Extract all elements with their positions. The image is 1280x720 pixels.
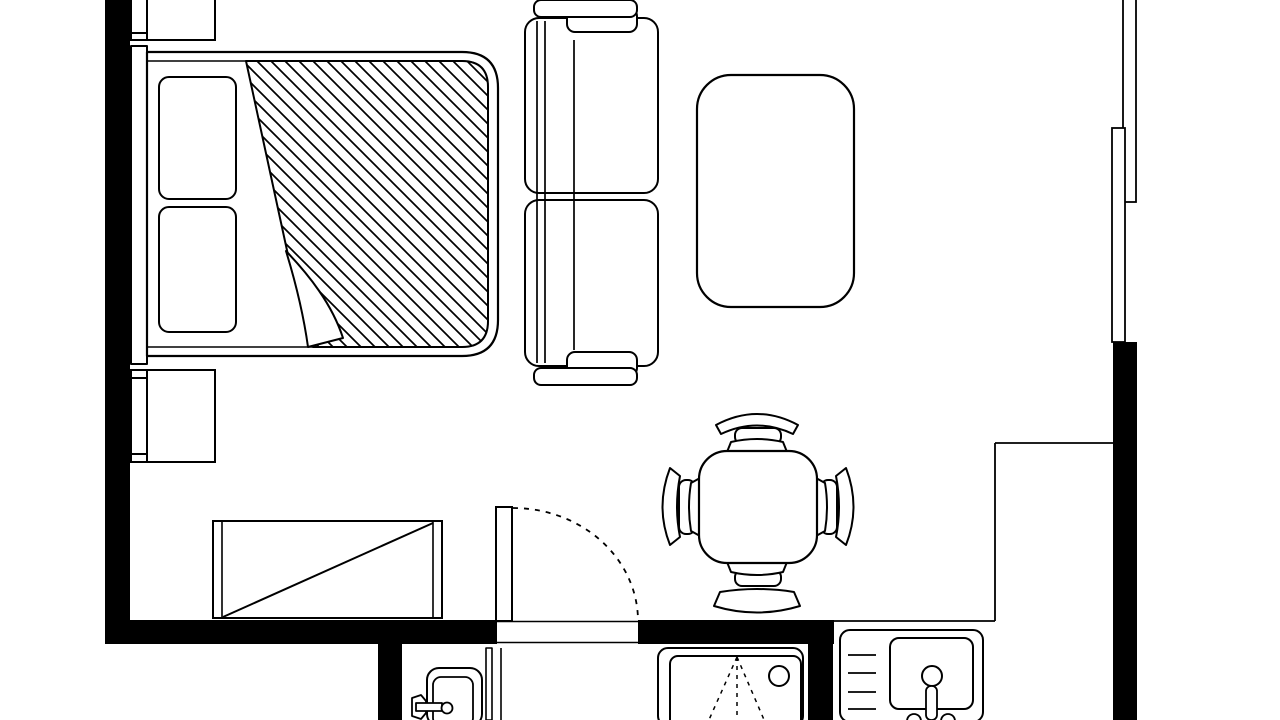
- nightstand-bottom: [131, 370, 215, 462]
- kitchen-sink: [840, 630, 983, 720]
- door-leaf: [496, 507, 512, 621]
- counter-edge-line: [834, 443, 1113, 621]
- sofa-armrest-top: [534, 0, 637, 17]
- chair-back: [663, 468, 681, 545]
- dining-chair-bottom: [714, 562, 800, 613]
- wall-kitchen-divider: [808, 644, 833, 720]
- pillow: [159, 77, 236, 199]
- floor-plan: [0, 0, 1280, 720]
- sink-faucet-handle-right: [941, 714, 955, 720]
- sink-faucet-handle-left: [907, 714, 921, 720]
- bed-headboard-rail: [131, 46, 147, 364]
- dining-set: [663, 414, 854, 613]
- bathtub-tap-knob: [442, 703, 453, 714]
- shower-drain: [769, 666, 789, 686]
- dining-chair-left: [663, 468, 701, 545]
- pillow: [159, 207, 236, 332]
- kitchen-counter-edge: [834, 443, 1113, 621]
- sink-faucet-stem: [926, 686, 937, 720]
- dining-chair-right: [816, 468, 854, 545]
- dining-table: [699, 451, 817, 563]
- bed: [131, 46, 498, 364]
- wall-left: [105, 0, 130, 644]
- door-threshold: [497, 620, 638, 644]
- chair-back: [714, 589, 800, 613]
- nightstand-body: [131, 370, 215, 462]
- wall-bottom-left: [105, 620, 497, 644]
- bathroom-partition: [486, 648, 492, 720]
- door-swing-arc: [513, 508, 638, 621]
- nightstand-top: [131, 0, 215, 40]
- sofa-armrest-bottom: [534, 368, 637, 385]
- bathroom: [412, 648, 501, 720]
- window-lower: [1112, 128, 1125, 342]
- sink-drain-hole: [922, 666, 942, 686]
- bathtub: [412, 668, 482, 720]
- entry-door: [496, 507, 638, 644]
- bathtub-tap-spout: [416, 703, 442, 711]
- bathtub-inner: [433, 677, 473, 720]
- sofa: [525, 0, 658, 385]
- wall-bottom-middle: [638, 620, 834, 644]
- shower: [658, 648, 803, 720]
- floor-plan-drawing: [0, 0, 1280, 720]
- dresser: [213, 521, 442, 618]
- wall-right: [1113, 342, 1137, 720]
- wall-bathroom-left: [378, 644, 402, 720]
- dining-chair-top: [716, 414, 798, 452]
- chair-back: [836, 468, 854, 545]
- rug: [697, 75, 854, 307]
